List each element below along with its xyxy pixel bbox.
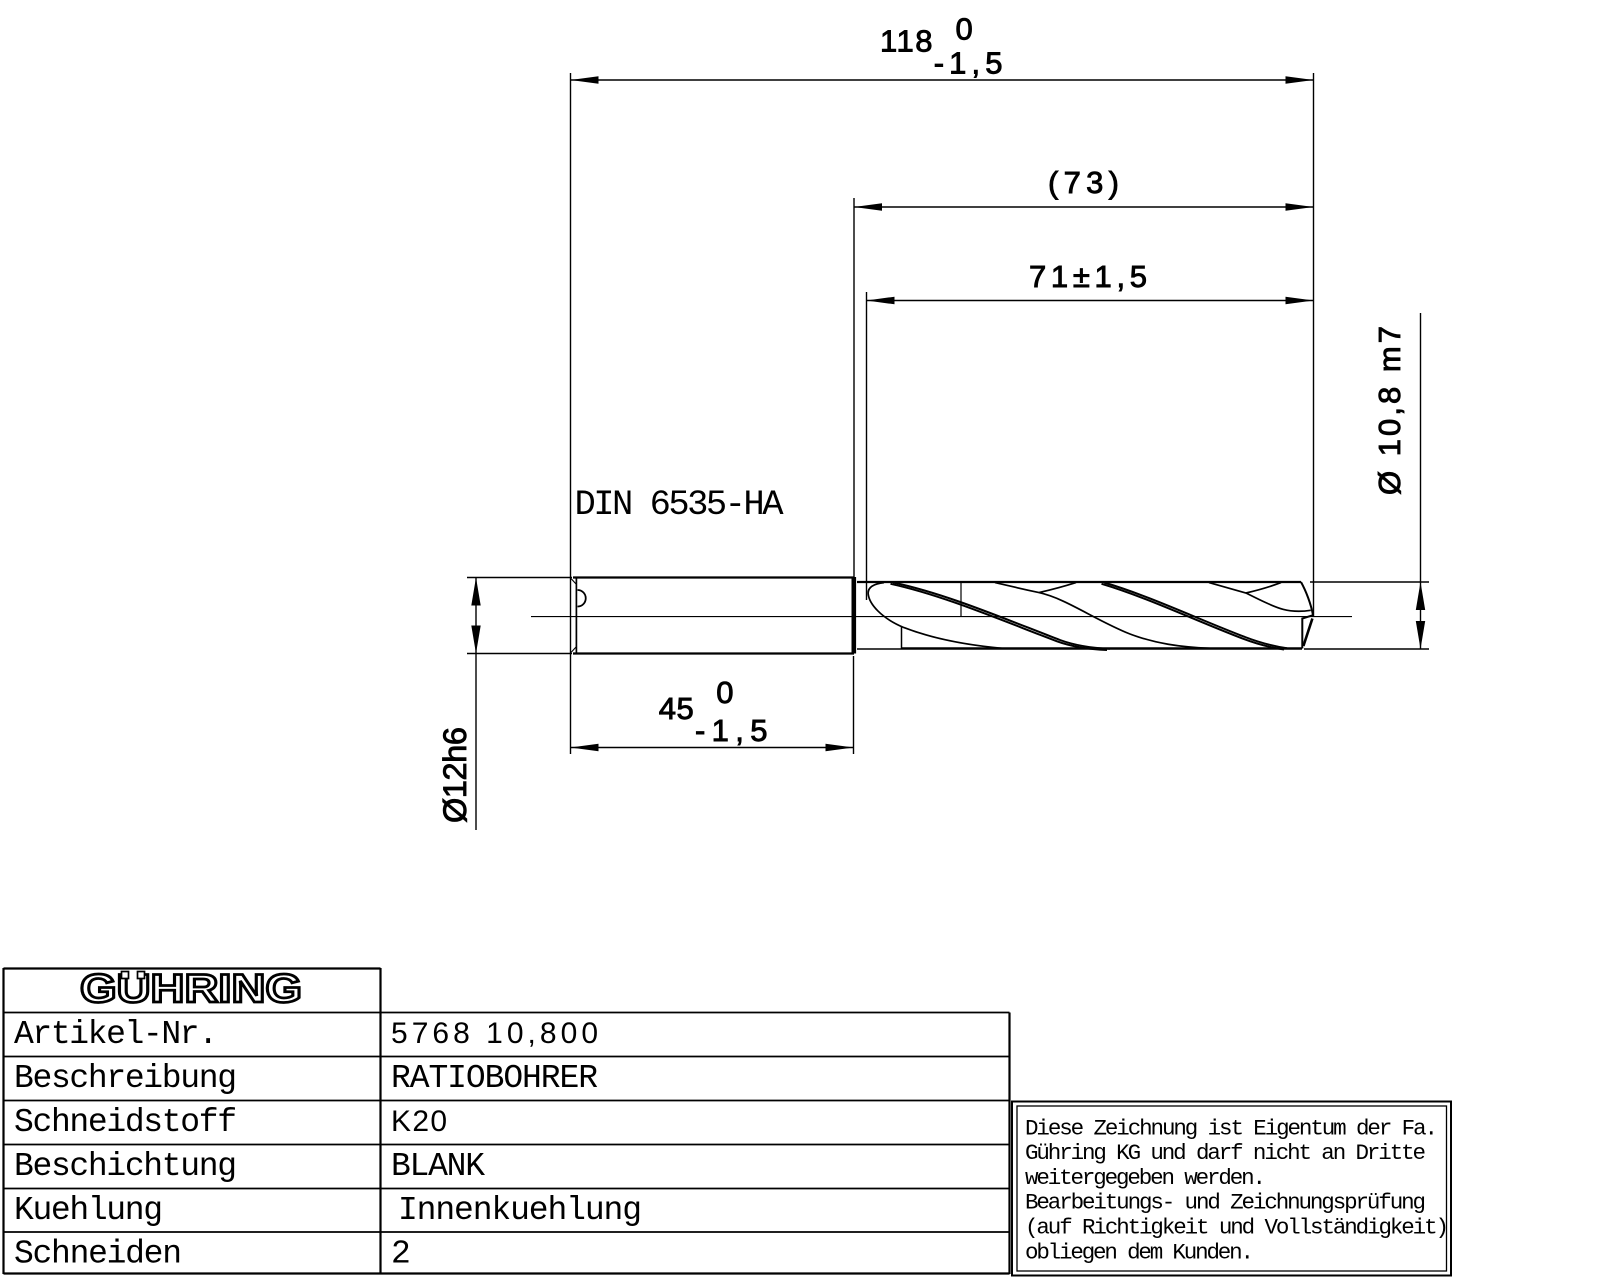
svg-text:Bearbeitungs- und Zeichnungspr: Bearbeitungs- und Zeichnungsprüfung: [1025, 1190, 1426, 1216]
svg-text:45: 45: [659, 691, 694, 726]
svg-text:DIN 6535-HA: DIN 6535-HA: [575, 484, 785, 525]
svg-text:0: 0: [956, 12, 973, 47]
svg-text:(auf Richtigkeit und Vollständ: (auf Richtigkeit und Vollständigkeit): [1025, 1215, 1449, 1241]
svg-text:Diese Zeichnung ist Eigentum d: Diese Zeichnung ist Eigentum der Fa.: [1025, 1115, 1438, 1141]
svg-text:Beschreibung: Beschreibung: [14, 1060, 237, 1097]
svg-text:Artikel-Nr.: Artikel-Nr.: [14, 1016, 218, 1053]
svg-text:Ø12h6: Ø12h6: [437, 727, 473, 823]
svg-text:0: 0: [716, 675, 733, 710]
svg-text:GUHRING: GUHRING: [80, 967, 302, 1011]
svg-text:Schneiden: Schneiden: [14, 1236, 182, 1273]
svg-text:RATIOBOHRER: RATIOBOHRER: [391, 1060, 598, 1097]
svg-text:Kuehlung: Kuehlung: [14, 1192, 163, 1229]
svg-text:Beschichtung: Beschichtung: [14, 1148, 237, 1185]
svg-text:2: 2: [391, 1236, 411, 1273]
svg-text:5768 10,800: 5768 10,800: [391, 1017, 598, 1050]
svg-text:118: 118: [880, 24, 933, 59]
svg-text:Innenkuehlung: Innenkuehlung: [398, 1192, 642, 1229]
svg-text:obliegen dem Kunden.: obliegen dem Kunden.: [1025, 1239, 1254, 1265]
svg-text:K20: K20: [391, 1105, 447, 1138]
svg-text:weitergegeben werden.: weitergegeben werden.: [1025, 1165, 1266, 1191]
svg-text:Gühring KG und darf nicht an D: Gühring KG und darf nicht an Dritte: [1025, 1140, 1426, 1166]
svg-text:BLANK: BLANK: [391, 1148, 485, 1185]
svg-text:Schneidstoff: Schneidstoff: [14, 1104, 237, 1141]
